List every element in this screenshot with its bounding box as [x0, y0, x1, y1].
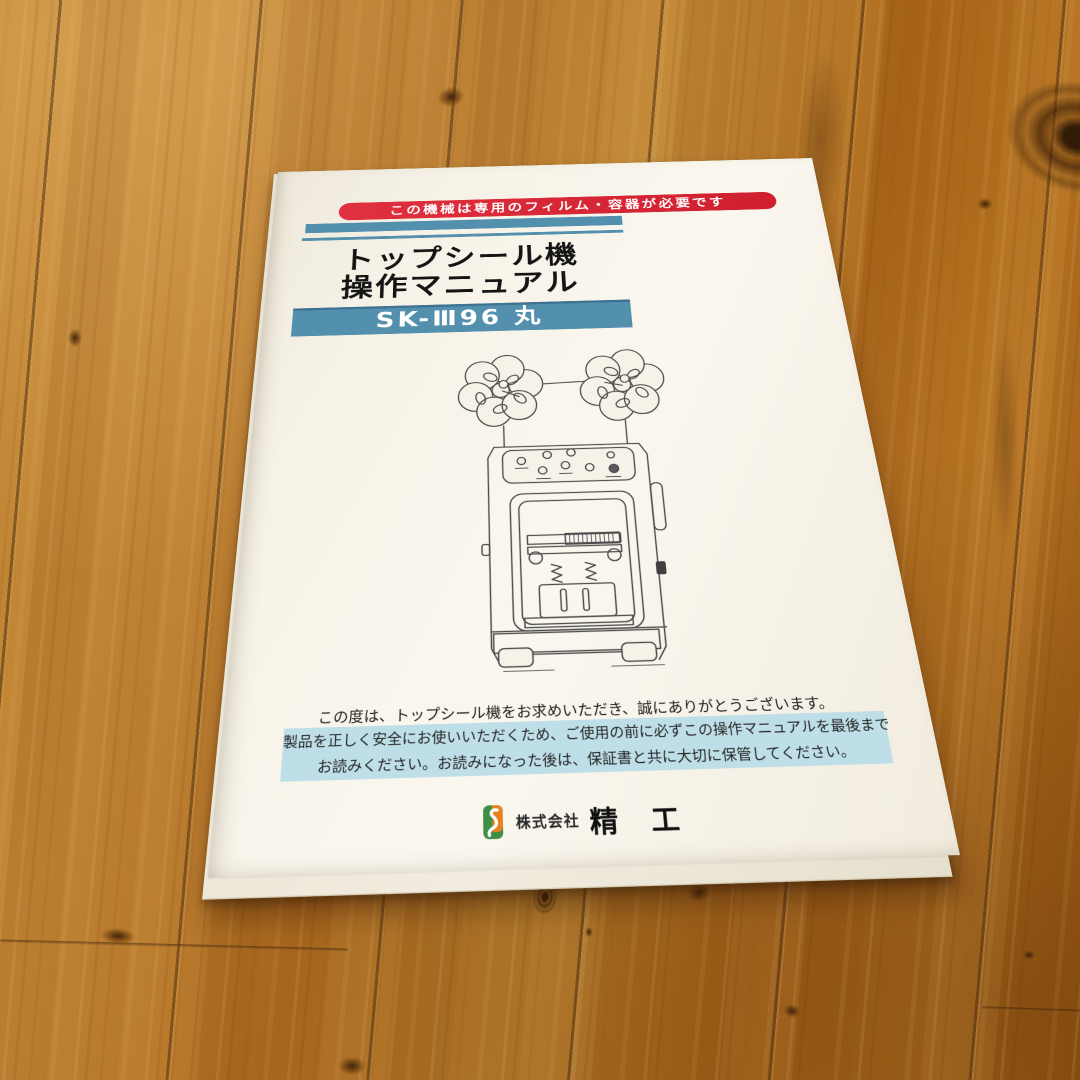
wood-knot [584, 925, 594, 939]
company-type-label: 株式会社 [516, 809, 581, 832]
company-name-label: 精 工 [588, 795, 683, 840]
wood-knot [334, 1054, 370, 1078]
logo-mark-icon [482, 804, 504, 840]
notice-banner: この機械は専用のフィルム・容器が必要です [338, 192, 778, 221]
photo-scene: この機械は専用のフィルム・容器が必要です トップシール機 操作マニュアル SK-… [0, 0, 1080, 1080]
wood-knot [975, 196, 995, 212]
wood-knot [66, 326, 84, 350]
wood-grain-streak [988, 300, 1022, 580]
top-seal-machine-illustration-icon [441, 348, 715, 699]
page-title: トップシール機 操作マニュアル [340, 237, 743, 302]
company-logo: 株式会社 精 工 [211, 787, 955, 852]
model-badge: SK-Ⅲ96 丸 [291, 299, 633, 336]
wood-knot [1020, 948, 1038, 962]
